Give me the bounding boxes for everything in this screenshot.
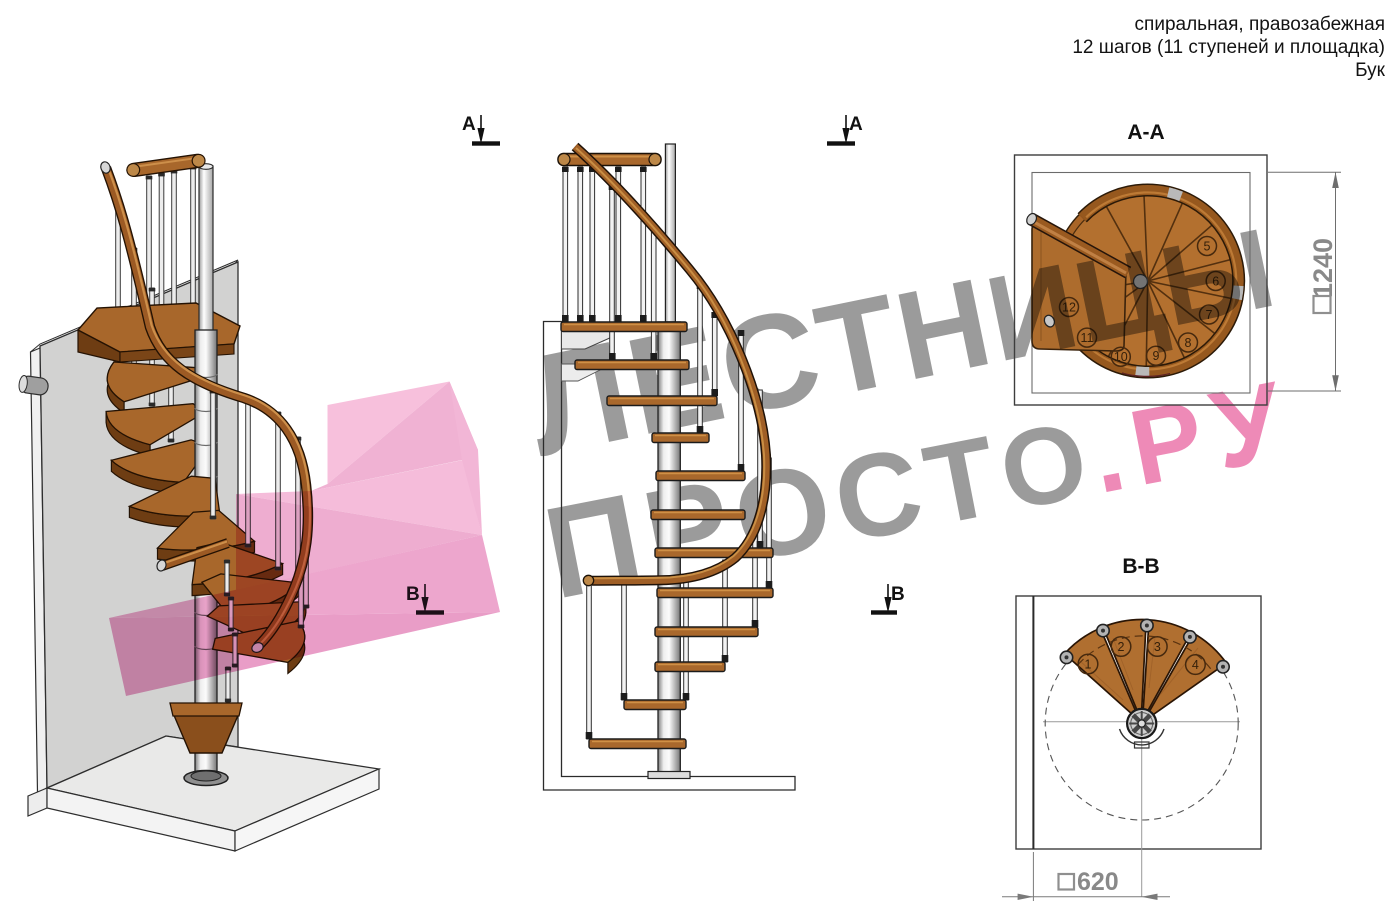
svg-text:1: 1: [1085, 658, 1092, 672]
svg-text:В-В: В-В: [1122, 555, 1159, 578]
svg-text:Бук: Бук: [1355, 60, 1386, 81]
svg-text:2: 2: [1118, 640, 1125, 654]
svg-text:спиральная, правозабежная: спиральная, правозабежная: [1135, 14, 1385, 35]
svg-text:А: А: [462, 114, 476, 135]
svg-text:4: 4: [1192, 658, 1199, 672]
svg-text:А: А: [849, 114, 863, 135]
svg-text:620: 620: [1077, 868, 1119, 896]
svg-text:12 шагов (11 ступеней и площад: 12 шагов (11 ступеней и площадка): [1072, 37, 1385, 58]
svg-text:В: В: [406, 584, 420, 605]
svg-text:1240: 1240: [1308, 238, 1338, 298]
svg-text:В: В: [891, 584, 905, 605]
svg-text:А-А: А-А: [1127, 121, 1164, 144]
svg-text:3: 3: [1154, 640, 1161, 654]
